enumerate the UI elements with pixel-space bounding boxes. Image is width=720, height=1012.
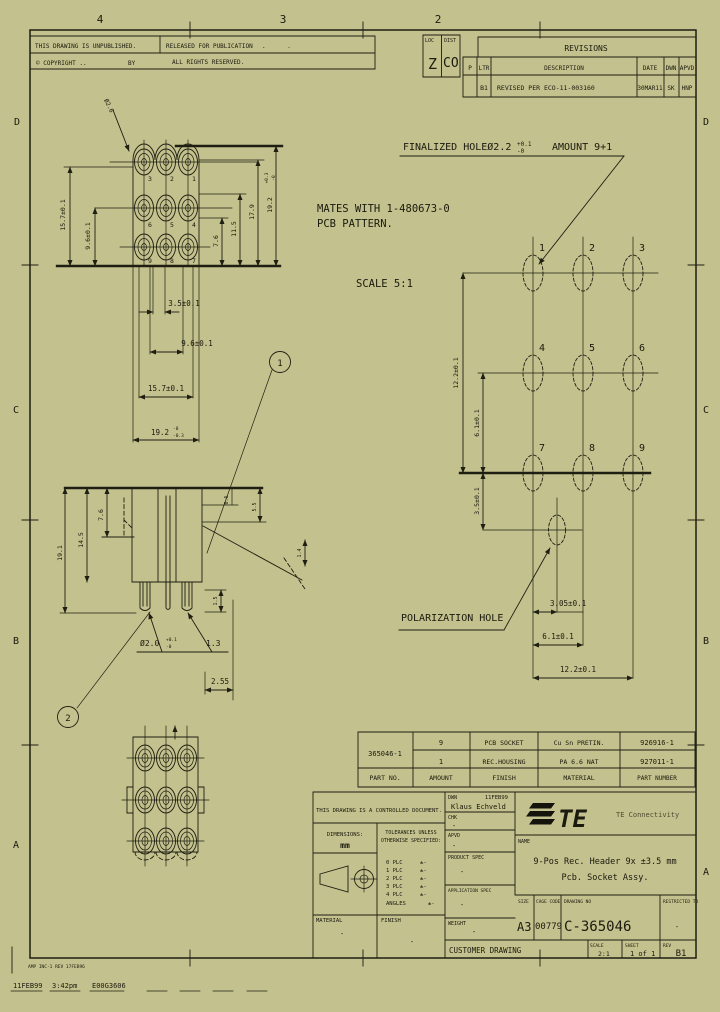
pin-number: 4 (192, 221, 196, 229)
rights-note: ALL RIGHTS RESERVED. (172, 59, 244, 66)
apvd-label: APVD (448, 833, 460, 839)
dim-label: Ø2.0 (140, 638, 159, 648)
revision-row: B1 REVISED PER ECO-11-003160 30MAR11 SK … (480, 84, 693, 92)
rev-value: B1 (676, 949, 687, 959)
amount-value: 1 (439, 758, 443, 766)
copyright-note: © COPYRIGHT .. (36, 60, 87, 67)
plc-label: 3 PLC (386, 884, 403, 890)
zone-left: A (13, 840, 19, 851)
pin-number: 8 (170, 257, 174, 265)
parts-table: 365046-1 9 PCB SOCKET Cu Sn PRETIN. 9269… (358, 732, 695, 787)
copyright-by: BY (128, 60, 136, 67)
dimensions-label: DIMENSIONS: (327, 832, 363, 838)
application-spec-label: APPLICATION SPEC (448, 888, 492, 894)
finish-value: REC.HOUSING (482, 758, 525, 766)
section-view: 0.6 5.5 1.4 19.1 14.5 7.6 1.5 Ø2.0 +0.1 … (56, 488, 305, 700)
hole-number: 9 (639, 443, 645, 454)
drawing-no-value: C-365046 (564, 919, 631, 935)
mates-note-line2: PCB PATTERN. (317, 218, 393, 230)
hole-number: 6 (639, 343, 645, 354)
rev-date: 30MAR11 (637, 85, 663, 92)
apvd-value: - (452, 842, 456, 850)
zone-right: D (703, 117, 709, 128)
tolerances-header: OTHERWISE SPECIFIED: (381, 838, 441, 844)
dim-label: 19.2 (266, 197, 274, 213)
title-block: THIS DRAWING IS A CONTROLLED DOCUMENT. D… (313, 792, 699, 959)
footer: AMP INC-1 REV 17FEB96 11FEB99 3:42pm E00… (11, 964, 267, 991)
dwn-name: Klaus Echveld (451, 803, 506, 811)
rev-col-desc: DESCRIPTION (544, 65, 584, 72)
chk-label: CHK (448, 815, 457, 821)
finish-label: FINISH (381, 918, 401, 924)
col-header-part-number: PART NUMBER (637, 775, 677, 782)
dim-label: 9.6±0.1 (84, 222, 92, 249)
pin-number: 5 (170, 221, 174, 229)
released-dots: . . (262, 43, 291, 50)
weight-label: WEIGHT (448, 921, 466, 927)
zone-left: C (13, 405, 19, 416)
col-header-part-no: PART NO. (369, 774, 400, 782)
sheet-value: 1 of 1 (630, 950, 655, 958)
hole-number: 5 (589, 343, 595, 354)
col-header-amount: AMOUNT (429, 774, 453, 782)
rear-view (122, 726, 209, 866)
zone-top: 2 (435, 13, 442, 26)
zone-top: 4 (97, 13, 104, 26)
restricted-value: - (675, 923, 679, 931)
released-note: RELEASED FOR PUBLICATION (166, 43, 253, 50)
plot-date: 11FEB99 (13, 982, 43, 990)
material-value: - (340, 930, 344, 938)
unpublished-note: THIS DRAWING IS UNPUBLISHED. (35, 43, 136, 50)
rev-col-ltr: LTR (479, 65, 490, 72)
revisions-title: REVISIONS (564, 44, 608, 53)
size-label: SIZE (518, 899, 529, 905)
dim-label: 0.6 (224, 495, 230, 504)
part-no-value: 365046-1 (368, 750, 402, 758)
form-number: AMP INC-1 REV 17FEB96 (28, 964, 85, 970)
dim-label: 11.5 (230, 221, 238, 237)
drawing-sheet: 4 3 2 D C B A D C B A THIS DRAWING IS UN… (0, 0, 720, 1012)
rev-apvd: HNP (682, 85, 693, 92)
dim-label: 2.55 (211, 677, 229, 686)
col-header-finish: FINISH (492, 774, 516, 782)
dim-label: 7.6 (97, 509, 105, 521)
loc-label: LOC (425, 38, 434, 44)
pin-number: 3 (148, 175, 152, 183)
loc-dist-box: LOC Z DIST CO (423, 35, 460, 77)
sheet-frame (12, 22, 704, 973)
dim-label: 3.5±0.1 (168, 299, 200, 308)
controlled-doc-note: THIS DRAWING IS A CONTROLLED DOCUMENT. (316, 808, 442, 814)
plc-label: 1 PLC (386, 868, 403, 874)
material-value: PA 6.6 NAT (559, 758, 598, 766)
hole-number: 7 (539, 443, 545, 454)
lead-diameter-label: Ø2.6 (102, 98, 115, 114)
scale-label: SCALE (590, 943, 604, 949)
loc-value: Z (428, 55, 437, 73)
size-value: A3 (517, 920, 531, 934)
rev-label: REV (663, 943, 671, 949)
rev-col-apvd: APVD (680, 65, 695, 72)
dim-label: 1.4 (297, 548, 303, 557)
pin-number: 1 (192, 175, 196, 183)
te-logo-text: TE (558, 805, 587, 833)
dim-tolerance: -0.3 (173, 433, 184, 439)
plc-value: ±- (420, 884, 427, 890)
finish-value: - (410, 938, 414, 946)
front-view: 3 2 1 6 5 4 9 8 7 Ø2.6 15.7±0.1 9.6±0.1 … (57, 98, 282, 442)
hole-number: 3 (639, 243, 645, 254)
drawing-canvas: 4 3 2 D C B A D C B A THIS DRAWING IS UN… (0, 0, 720, 1012)
plc-value: ±- (420, 860, 427, 866)
plc-value: ±- (420, 868, 427, 874)
dim-tolerance: -0 (166, 644, 172, 650)
mates-note-line1: MATES WITH 1-480673-0 (317, 203, 450, 215)
pin-number: 9 (148, 257, 152, 265)
dim-label: 9.6±0.1 (181, 339, 213, 348)
dim-label: 15.7±0.1 (148, 384, 184, 393)
scale-value: 2:1 (598, 950, 610, 958)
part-number-value: 926916-1 (640, 739, 674, 747)
rev-col-p: P (468, 65, 472, 72)
drawing-title-line1: 9-Pos Rec. Header 9x ±3.5 mm (533, 857, 676, 867)
dim-label: 19.2 (151, 428, 169, 437)
application-spec-value: - (460, 901, 464, 909)
dim-label: 12.2±0.1 (452, 357, 460, 388)
cage-code-label: CAGE CODE (536, 899, 561, 905)
amount-note: AMOUNT 9+1 (552, 142, 612, 153)
plot-time: 3:42pm (52, 982, 77, 990)
te-logo: TE TE Connectivity (526, 803, 679, 833)
dist-label: DIST (444, 38, 456, 44)
rev-ltr: B1 (480, 84, 488, 92)
pin-number: 2 (170, 175, 174, 183)
scale-note: SCALE 5:1 (356, 278, 413, 290)
dim-tolerance: +0.1 (166, 637, 177, 643)
finish-value: PCB SOCKET (484, 739, 523, 747)
dim-label: 12.2±0.1 (560, 665, 596, 674)
dim-label: 7.6 (212, 235, 220, 247)
dim-tolerance: -0 (271, 175, 277, 181)
name-label: NAME (518, 839, 530, 845)
material-value: Cu Sn PRETIN. (554, 739, 605, 747)
revisions-table: REVISIONS P LTR DESCRIPTION DATE DWN APV… (463, 37, 695, 97)
hole-number: 4 (539, 343, 545, 354)
plc-value: ±- (420, 876, 427, 882)
cage-code-value: 00779 (535, 922, 562, 932)
dim-label: 6.1±0.1 (542, 632, 574, 641)
hole-number: 2 (589, 243, 595, 254)
balloon-1: 1 (207, 352, 291, 554)
material-label: MATERIAL (316, 918, 343, 924)
product-spec-value: - (460, 868, 464, 876)
plc-label: 4 PLC (386, 892, 403, 898)
dim-label: 3.05±0.1 (550, 599, 586, 608)
polarization-note: POLARIZATION HOLE (401, 613, 503, 624)
hole-tol-top: +0.1 (517, 141, 532, 148)
tolerances-header: TOLERANCES UNLESS (385, 830, 436, 836)
dim-label: 14.5 (77, 532, 85, 548)
plc-label: ANGLES (386, 901, 406, 907)
customer-drawing-label: CUSTOMER DRAWING (449, 946, 522, 955)
dim-label: 6.1±0.1 (473, 409, 481, 436)
plc-label: 2 PLC (386, 876, 403, 882)
dim-label: 5.5 (252, 502, 258, 511)
dim-tolerance: -0 (173, 426, 179, 432)
finalized-hole-note: FINALIZED HOLEØ2.2 (403, 141, 511, 153)
front-contacts (135, 149, 198, 260)
rev-col-date: DATE (643, 65, 658, 72)
zone-left: D (14, 117, 20, 128)
drawing-notes: FINALIZED HOLEØ2.2 +0.1 -0 AMOUNT 9+1 MA… (317, 141, 624, 630)
plot-code: E00G3606 (92, 982, 126, 990)
pin-number: 6 (148, 221, 152, 229)
balloon-number: 1 (277, 359, 282, 369)
plc-value: ±- (420, 892, 427, 898)
dim-label: 19.1 (56, 545, 64, 561)
chk-value: - (452, 822, 456, 830)
plc-label: 0 PLC (386, 860, 403, 866)
drawing-title-line2: Pcb. Socket Assy. (562, 873, 649, 883)
dim-label: 3.5±0.1 (473, 487, 481, 514)
zone-right: B (703, 636, 709, 647)
part-number-value: 927011-1 (640, 758, 674, 766)
sheet-label: SHEET (625, 943, 639, 949)
dimensions-units: mm (340, 841, 350, 850)
restricted-label: RESTRICTED TO (663, 899, 699, 905)
rev-desc: REVISED PER ECO-11-003160 (497, 84, 595, 92)
parts-row: 9 PCB SOCKET Cu Sn PRETIN. 926916-1 (439, 739, 674, 747)
balloon-number: 2 (65, 714, 70, 724)
legal-header: THIS DRAWING IS UNPUBLISHED. RELEASED FO… (30, 36, 375, 69)
zone-top: 3 (280, 13, 287, 26)
rev-dwn: SK (667, 85, 675, 92)
dim-label: 15.7±0.1 (59, 199, 67, 230)
hole-number: 1 (539, 243, 545, 254)
hole-tol-bot: -0 (517, 148, 525, 155)
rev-col-dwn: DWN (666, 65, 677, 72)
weight-value: - (472, 928, 476, 936)
balloon-2: 2 (58, 612, 151, 728)
dim-tolerance: +0.3 (264, 172, 270, 183)
dwn-label: DWN (448, 795, 457, 801)
hole-number: 8 (589, 443, 595, 454)
pcb-pattern-view: 1 2 3 4 5 6 7 8 9 12.2±0.1 6.1±0.1 3.5±0… (452, 237, 658, 678)
parts-row: 1 REC.HOUSING PA 6.6 NAT 927011-1 (439, 758, 674, 766)
drawing-no-label: DRAWING NO (564, 899, 591, 905)
dwn-date: 11FEB99 (485, 795, 508, 801)
amount-value: 9 (439, 739, 443, 747)
zone-left: B (13, 636, 19, 647)
plc-value: ±- (428, 901, 435, 907)
zone-right: C (703, 405, 709, 416)
product-spec-label: PRODUCT SPEC (448, 855, 484, 861)
dim-label: 17.9 (248, 204, 256, 220)
dist-value: CO (443, 56, 459, 71)
pin-number: 7 (192, 257, 196, 265)
zone-right: A (703, 867, 709, 878)
brand-name: TE Connectivity (616, 811, 679, 819)
projection-symbol-icon (320, 866, 377, 892)
dim-label: 1.5 (213, 596, 219, 605)
col-header-material: MATERIAL (563, 774, 594, 782)
